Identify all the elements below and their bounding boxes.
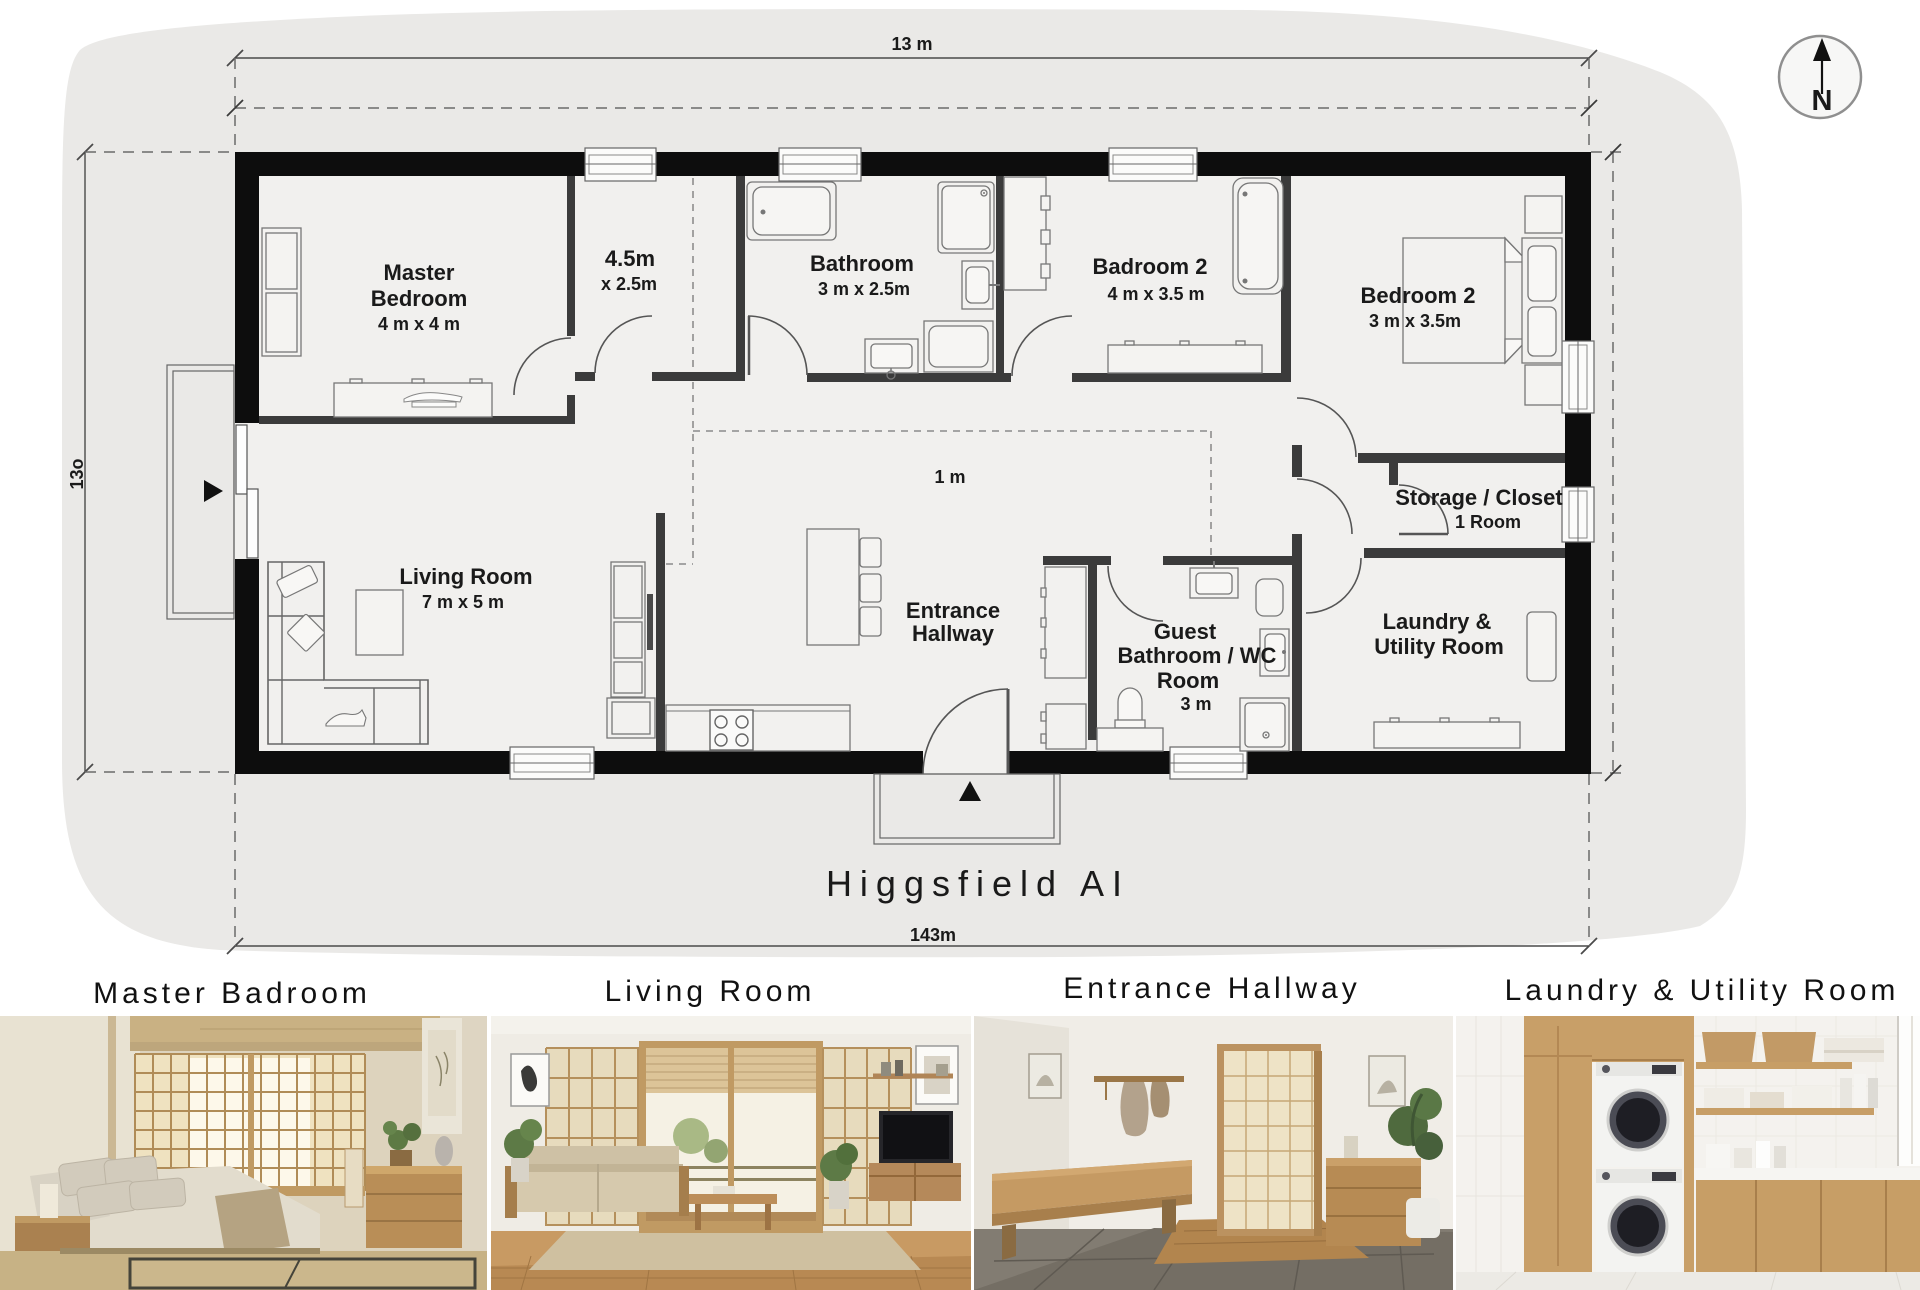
svg-text:Laundry &: Laundry &: [1383, 609, 1492, 634]
svg-text:Room: Room: [1157, 668, 1219, 693]
svg-text:Bathroom / WC: Bathroom / WC: [1118, 643, 1277, 668]
svg-text:3 m x 3.5m: 3 m x 3.5m: [1369, 311, 1461, 331]
svg-text:Utility Room: Utility Room: [1374, 634, 1504, 659]
svg-text:Bathroom: Bathroom: [810, 251, 914, 276]
svg-text:x 2.5m: x 2.5m: [601, 274, 657, 294]
svg-text:Bedroom 2: Bedroom 2: [1361, 283, 1476, 308]
svg-text:1 Room: 1 Room: [1455, 512, 1521, 532]
svg-text:4.5m: 4.5m: [605, 246, 655, 271]
svg-text:Badroom 2: Badroom 2: [1093, 254, 1208, 279]
svg-text:1 m: 1 m: [934, 467, 965, 487]
svg-text:4 m x 3.5 m: 4 m x 3.5 m: [1107, 284, 1204, 304]
svg-text:3 m: 3 m: [1180, 694, 1211, 714]
svg-text:Bedroom: Bedroom: [371, 286, 468, 311]
svg-text:Living Room: Living Room: [399, 564, 532, 589]
svg-text:Living Room: Living Room: [605, 975, 816, 1008]
svg-text:Hallway: Hallway: [912, 621, 995, 646]
svg-text:Master Badroom: Master Badroom: [93, 977, 371, 1010]
svg-text:143m: 143m: [910, 925, 956, 945]
svg-text:Guest: Guest: [1154, 619, 1217, 644]
svg-text:Higgsfield AI: Higgsfield AI: [826, 863, 1130, 904]
svg-text:7 m x 5 m: 7 m x 5 m: [422, 592, 504, 612]
svg-text:3 m x 2.5m: 3 m x 2.5m: [818, 279, 910, 299]
svg-text:Laundry & Utility Room: Laundry & Utility Room: [1505, 974, 1900, 1007]
svg-text:Entrance Hallway: Entrance Hallway: [1063, 972, 1360, 1005]
svg-text:Entrance: Entrance: [906, 598, 1000, 623]
svg-text:N: N: [1812, 85, 1833, 117]
svg-text:Storage / Closet: Storage / Closet: [1395, 485, 1563, 510]
svg-text:Master: Master: [384, 260, 455, 285]
svg-text:13 m: 13 m: [891, 34, 932, 54]
svg-text:13o: 13o: [67, 458, 87, 489]
svg-text:4 m x 4 m: 4 m x 4 m: [378, 314, 460, 334]
